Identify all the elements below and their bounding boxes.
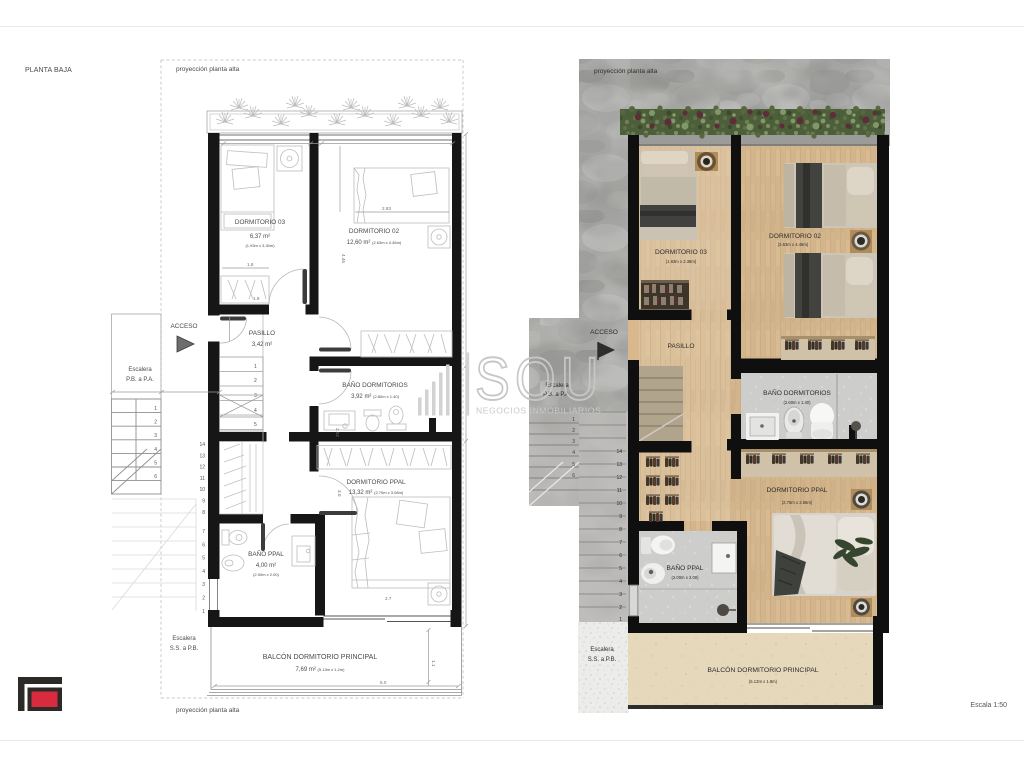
svg-text:2.7: 2.7 xyxy=(385,596,392,601)
svg-text:4,00 m²: 4,00 m² xyxy=(256,563,276,569)
svg-text:4.46: 4.46 xyxy=(341,254,346,263)
svg-text:PASILLO: PASILLO xyxy=(668,343,695,350)
svg-text:(1.93m x 3.30m): (1.93m x 3.30m) xyxy=(245,243,275,248)
svg-text:10: 10 xyxy=(199,487,205,493)
svg-text:4: 4 xyxy=(572,450,575,456)
svg-text:proyección planta alta: proyección planta alta xyxy=(594,68,658,75)
svg-text:BAÑO DORMITORIOS: BAÑO DORMITORIOS xyxy=(763,388,831,397)
svg-text:6: 6 xyxy=(572,473,575,479)
svg-text:proyección planta alta: proyección planta alta xyxy=(176,66,240,73)
svg-text:2: 2 xyxy=(619,605,622,611)
svg-text:2.83: 2.83 xyxy=(382,206,391,211)
svg-text:Escalera: Escalera xyxy=(172,636,196,642)
svg-text:DORMITORIO 03: DORMITORIO 03 xyxy=(235,219,286,226)
svg-text:1.1: 1.1 xyxy=(431,660,436,667)
svg-text:1: 1 xyxy=(254,364,257,370)
svg-text:11: 11 xyxy=(200,476,205,482)
svg-text:(1.93m x 2.38m): (1.93m x 2.38m) xyxy=(666,259,697,264)
svg-text:(2.60m x 1.40): (2.60m x 1.40) xyxy=(784,400,812,405)
svg-text:3: 3 xyxy=(154,433,157,439)
svg-text:1: 1 xyxy=(202,609,205,615)
svg-text:BAÑO PPAL: BAÑO PPAL xyxy=(248,549,284,558)
svg-text:BAÑO PPAL: BAÑO PPAL xyxy=(667,563,704,572)
svg-text:proyección planta alta: proyección planta alta xyxy=(176,707,240,714)
svg-text:(2.63m x 4.46m): (2.63m x 4.46m) xyxy=(778,242,809,247)
svg-text:5: 5 xyxy=(619,566,622,572)
svg-text:13: 13 xyxy=(199,453,205,459)
svg-text:4: 4 xyxy=(202,569,205,575)
svg-text:3.0: 3.0 xyxy=(337,490,342,497)
svg-text:4: 4 xyxy=(619,579,622,585)
svg-text:Escala 1:50: Escala 1:50 xyxy=(970,702,1007,709)
svg-text:1.9: 1.9 xyxy=(253,296,260,301)
svg-text:14: 14 xyxy=(616,449,622,455)
svg-text:2.52: 2.52 xyxy=(335,428,340,437)
svg-text:8: 8 xyxy=(202,510,205,516)
svg-text:S.S. a P.B.: S.S. a P.B. xyxy=(588,657,617,663)
svg-text:6,37 m²: 6,37 m² xyxy=(250,234,270,240)
svg-text:5: 5 xyxy=(154,460,157,466)
svg-text:Escalera: Escalera xyxy=(128,367,152,373)
svg-text:DORMITORIO 02: DORMITORIO 02 xyxy=(769,233,821,240)
svg-text:12: 12 xyxy=(199,465,205,471)
svg-text:10: 10 xyxy=(616,501,622,507)
svg-text:2: 2 xyxy=(572,428,575,434)
svg-text:(5.13m x 1.8m): (5.13m x 1.8m) xyxy=(749,679,778,684)
svg-text:11: 11 xyxy=(617,488,622,494)
svg-text:3: 3 xyxy=(202,582,205,588)
svg-text:BALCÓN DORMITORIO PRINCIPAL: BALCÓN DORMITORIO PRINCIPAL xyxy=(263,652,378,661)
svg-text:(2.00m x 2.00): (2.00m x 2.00) xyxy=(253,572,279,577)
svg-text:3,42 m²: 3,42 m² xyxy=(252,342,272,348)
svg-text:NEGOCIOS INMOBILIARIOS: NEGOCIOS INMOBILIARIOS xyxy=(476,406,601,416)
svg-text:6: 6 xyxy=(154,474,157,480)
svg-text:DORMITORIO 02: DORMITORIO 02 xyxy=(349,228,400,235)
svg-text:7: 7 xyxy=(619,540,622,546)
svg-text:5: 5 xyxy=(254,422,257,428)
svg-text:DORMITORIO 03: DORMITORIO 03 xyxy=(655,249,707,256)
svg-text:2: 2 xyxy=(202,596,205,602)
svg-text:PASILLO: PASILLO xyxy=(249,330,275,337)
svg-text:1.8: 1.8 xyxy=(247,262,254,267)
svg-text:3: 3 xyxy=(572,439,575,445)
svg-text:12: 12 xyxy=(616,475,622,481)
svg-text:SOU: SOU xyxy=(475,345,604,412)
svg-text:5: 5 xyxy=(202,556,205,562)
svg-text:ACCESO: ACCESO xyxy=(171,323,198,330)
svg-text:Escalera: Escalera xyxy=(590,647,614,653)
svg-text:13: 13 xyxy=(616,462,622,468)
svg-text:2: 2 xyxy=(154,420,157,426)
svg-text:5.0: 5.0 xyxy=(380,680,387,685)
svg-text:S.S. a P.B.: S.S. a P.B. xyxy=(170,646,199,652)
svg-text:(2.75m x 3.65m): (2.75m x 3.65m) xyxy=(782,500,813,505)
svg-text:1: 1 xyxy=(572,417,575,423)
svg-text:5: 5 xyxy=(572,462,575,468)
svg-text:DORMITORIO PPAL: DORMITORIO PPAL xyxy=(346,479,406,486)
svg-text:14: 14 xyxy=(199,442,205,448)
svg-text:(2.00m x 2.00): (2.00m x 2.00) xyxy=(672,575,700,580)
svg-text:8: 8 xyxy=(619,527,622,533)
svg-text:BAÑO DORMITORIOS: BAÑO DORMITORIOS xyxy=(342,380,408,389)
svg-text:3: 3 xyxy=(619,592,622,598)
svg-text:4: 4 xyxy=(154,447,157,453)
svg-text:7: 7 xyxy=(202,529,205,535)
svg-text:6: 6 xyxy=(202,542,205,548)
svg-text:1: 1 xyxy=(154,406,157,412)
svg-text:6: 6 xyxy=(619,553,622,559)
svg-text:9: 9 xyxy=(619,514,622,520)
svg-text:BALCÓN DORMITORIO PRINCIPAL: BALCÓN DORMITORIO PRINCIPAL xyxy=(707,665,818,674)
svg-text:2: 2 xyxy=(254,378,257,384)
svg-text:DORMITORIO PPAL: DORMITORIO PPAL xyxy=(767,487,828,494)
svg-text:9: 9 xyxy=(202,499,205,505)
svg-text:PLANTA BAJA: PLANTA BAJA xyxy=(25,67,72,74)
svg-text:ACCESO: ACCESO xyxy=(590,329,618,336)
svg-text:P.B. a P.A.: P.B. a P.A. xyxy=(126,377,154,383)
